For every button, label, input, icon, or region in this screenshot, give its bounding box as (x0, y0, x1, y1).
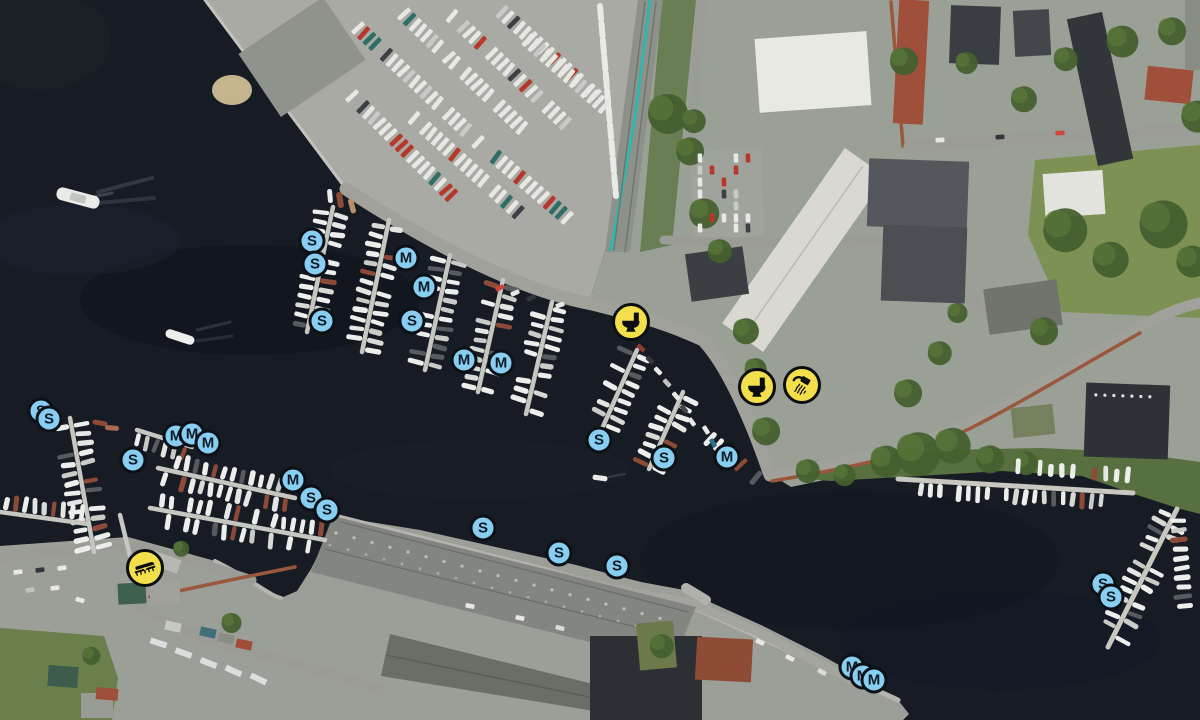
marker-berth-s[interactable]: S (120, 447, 147, 474)
marker-berth-m[interactable]: M (861, 667, 888, 694)
marker-toilet[interactable] (738, 368, 776, 406)
marker-slipway[interactable] (126, 549, 164, 587)
marker-letter: S (612, 558, 622, 573)
marker-letter: S (407, 313, 417, 328)
slipway-icon (133, 556, 157, 580)
marker-letter: S (317, 313, 327, 328)
marker-berth-s[interactable]: S (314, 497, 341, 524)
marker-berth-s[interactable]: S (546, 540, 573, 567)
marker-berth-m[interactable]: M (714, 444, 741, 471)
marker-letter: M (721, 449, 734, 464)
marker-letter: S (322, 502, 332, 517)
marker-berth-s[interactable]: S (470, 515, 497, 542)
marker-letter: S (310, 256, 320, 271)
marker-berth-s[interactable]: S (36, 406, 63, 433)
marker-berth-s[interactable]: S (302, 251, 329, 278)
marker-berth-m[interactable]: M (488, 350, 515, 377)
toilet-icon (619, 310, 643, 334)
marker-letter: S (478, 520, 488, 535)
marker-letter: S (659, 450, 669, 465)
marker-berth-s[interactable]: S (399, 308, 426, 335)
marker-toilet[interactable] (612, 303, 650, 341)
marker-letter: M (458, 352, 471, 367)
marker-letter: M (202, 435, 215, 450)
marker-berth-m[interactable]: M (411, 274, 438, 301)
map-markers: SSMMSSMMSSMMMSMSSSSMSSSSSMMM (0, 0, 1200, 720)
marker-letter: M (287, 472, 300, 487)
marker-berth-m[interactable]: M (195, 430, 222, 457)
marker-berth-s[interactable]: S (309, 308, 336, 335)
marker-letter: S (1106, 589, 1116, 604)
marker-berth-s[interactable]: S (586, 427, 613, 454)
marker-berth-m[interactable]: M (451, 347, 478, 374)
toilet-icon (745, 375, 769, 399)
marker-berth-s[interactable]: S (1098, 584, 1125, 611)
marker-letter: M (418, 279, 431, 294)
marker-letter: S (307, 233, 317, 248)
marker-letter: S (594, 432, 604, 447)
map-canvas[interactable]: SSMMSSMMSSMMMSMSSSSMSSSSSMMM (0, 0, 1200, 720)
marker-shower[interactable] (783, 366, 821, 404)
marker-berth-s[interactable]: S (651, 445, 678, 472)
marker-letter: S (554, 545, 564, 560)
marker-letter: S (44, 411, 54, 426)
marker-letter: M (400, 250, 413, 265)
marker-berth-s[interactable]: S (604, 553, 631, 580)
marker-letter: S (128, 452, 138, 467)
marker-letter: M (495, 355, 508, 370)
marker-letter: M (868, 672, 881, 687)
marker-berth-m[interactable]: M (393, 245, 420, 272)
shower-icon (790, 373, 814, 397)
